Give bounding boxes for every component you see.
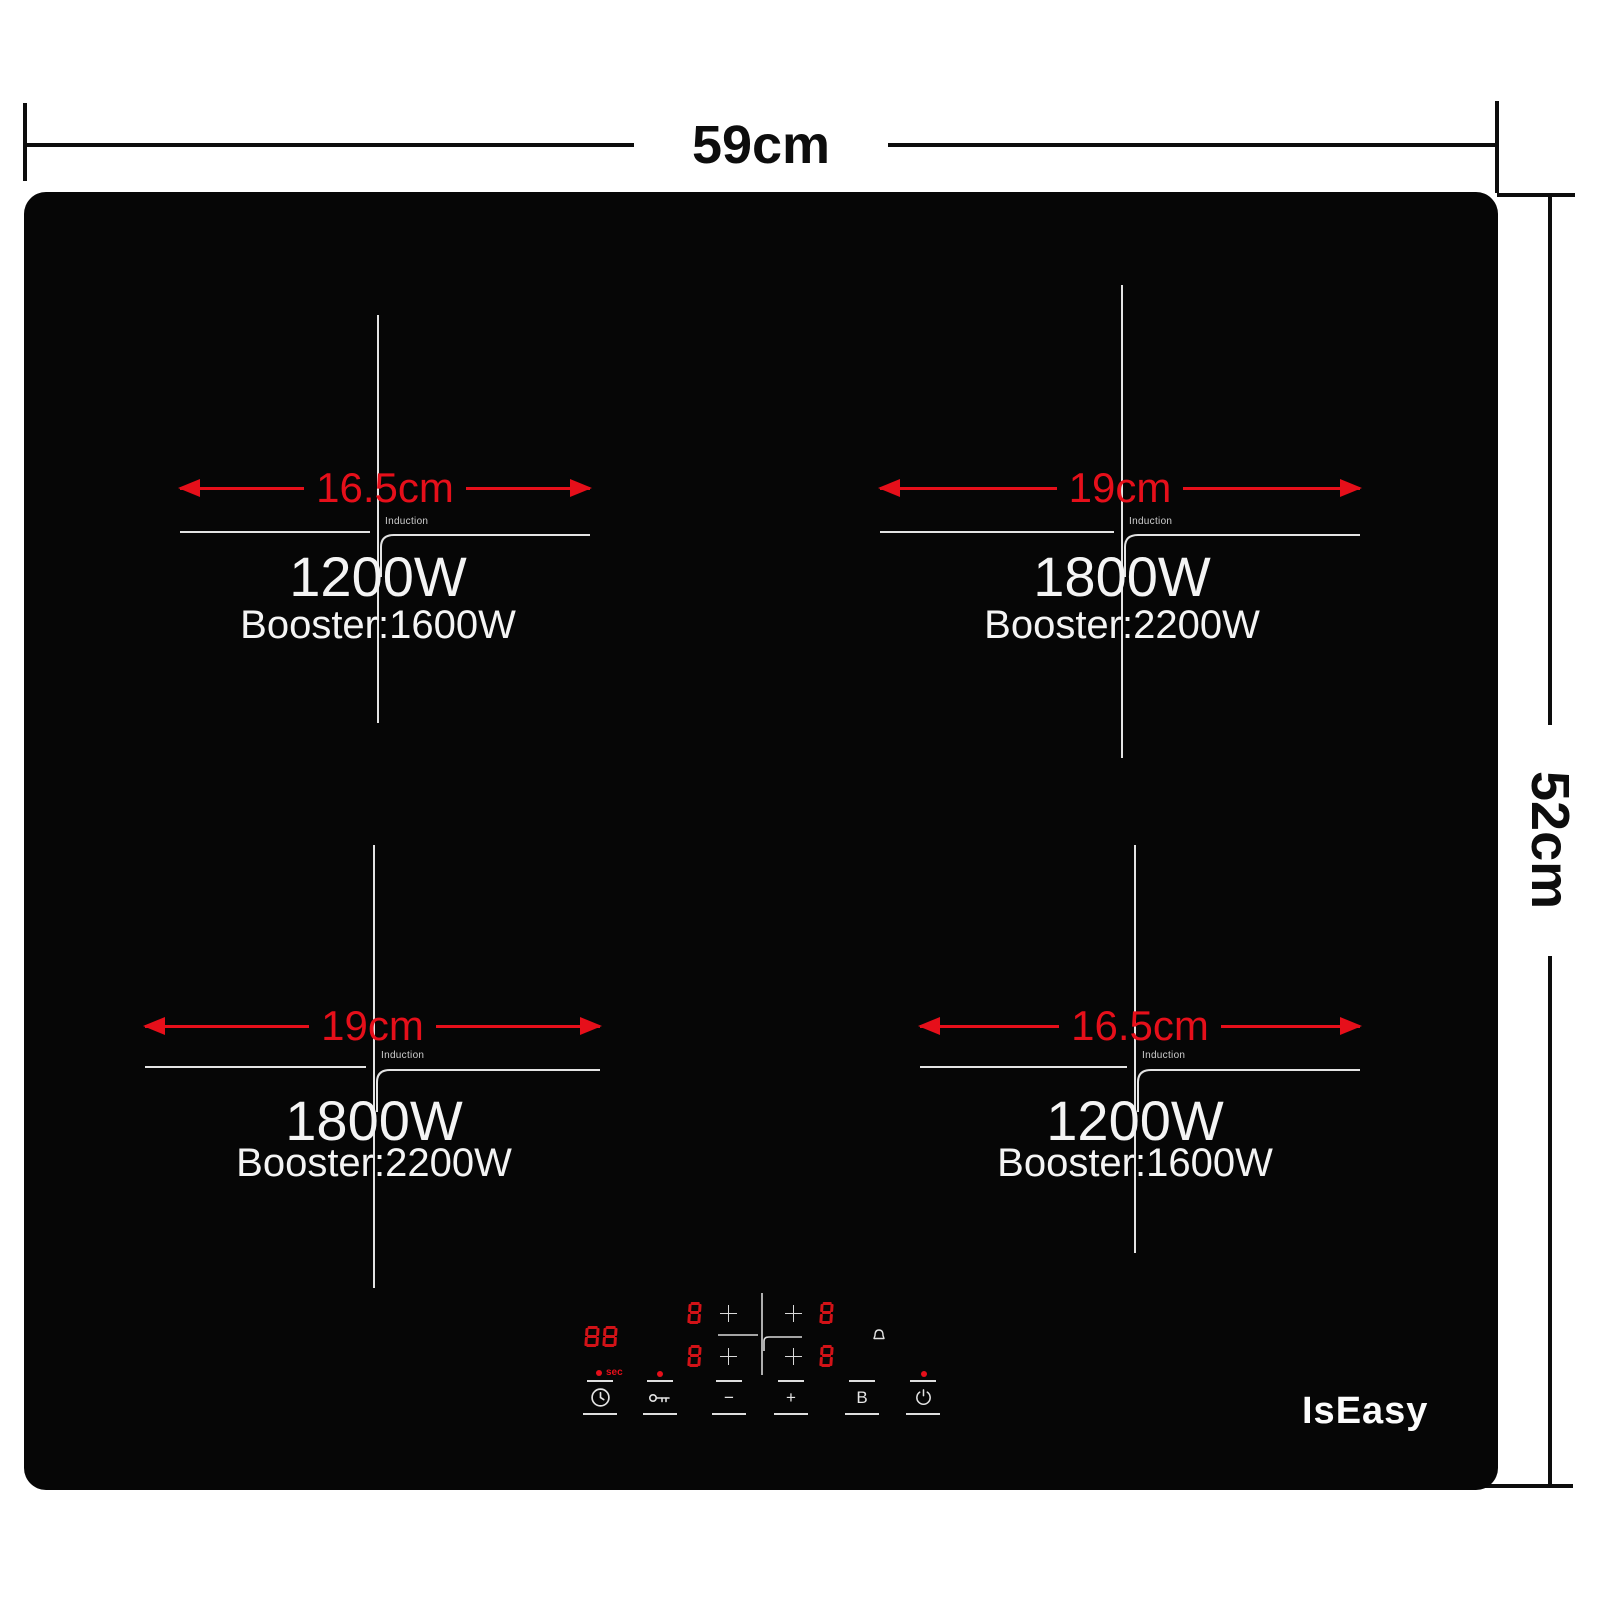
lock-indicator-dot	[657, 1371, 663, 1377]
timer-button[interactable]	[585, 1384, 615, 1411]
zone-map-cross-icon	[714, 1293, 806, 1377]
zone-digit-front-left	[687, 1302, 702, 1324]
control-panel: sec − +	[0, 0, 1600, 1600]
power-button[interactable]	[908, 1384, 938, 1411]
booster-button[interactable]: B	[847, 1384, 877, 1411]
power-icon	[914, 1388, 933, 1407]
key-icon	[648, 1392, 672, 1404]
brand-logo: IsEasy	[1302, 1392, 1428, 1430]
minus-button[interactable]: −	[714, 1384, 744, 1411]
timer-unit-label: sec	[606, 1368, 623, 1378]
timer-indicator-dot	[596, 1370, 602, 1376]
timer-display	[585, 1326, 617, 1347]
zone-digit-rear-right	[819, 1345, 834, 1367]
power-indicator-dot	[921, 1371, 927, 1377]
plus-button[interactable]: +	[776, 1384, 806, 1411]
zone-digit-front-right	[819, 1302, 834, 1324]
plus-label: +	[786, 1389, 796, 1406]
booster-label: B	[856, 1389, 867, 1406]
child-lock-button[interactable]	[645, 1384, 675, 1411]
zone-digit-rear-left	[687, 1345, 702, 1367]
bell-icon	[870, 1327, 888, 1347]
minus-label: −	[724, 1389, 734, 1406]
seven-segment-digit	[584, 1326, 599, 1347]
seven-segment-digit	[602, 1326, 617, 1347]
clock-icon	[590, 1387, 611, 1408]
product-dimension-diagram: 59cm 52cm 16.5cm Induction 1200W Booster…	[0, 0, 1600, 1600]
timer-unit: sec	[596, 1368, 623, 1378]
